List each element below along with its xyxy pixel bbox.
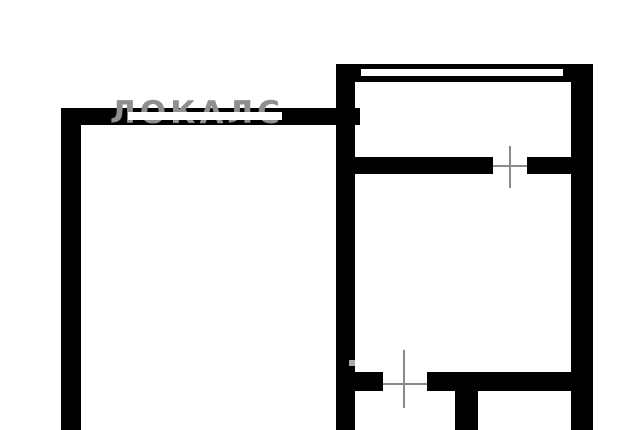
upper-divider-right — [527, 157, 571, 174]
lower-divider-right — [427, 372, 571, 391]
right-section-left-wall — [336, 64, 355, 430]
floorplan-canvas: ЛОКАЛС — [0, 0, 640, 430]
upper-door-axis-horizontal — [493, 165, 527, 167]
watermark-strike-band — [128, 112, 282, 120]
bottom-stub-wall — [455, 390, 478, 430]
lower-divider-left — [355, 372, 383, 391]
window-slot — [361, 69, 563, 76]
upper-door-axis-vertical — [509, 146, 511, 188]
upper-divider-left — [355, 157, 493, 174]
left-outer-wall — [61, 108, 81, 430]
right-outer-wall — [571, 64, 593, 430]
lower-door-axis-vertical — [403, 350, 405, 408]
gray-speck — [349, 360, 355, 366]
lower-door-axis-horizontal — [382, 383, 427, 385]
